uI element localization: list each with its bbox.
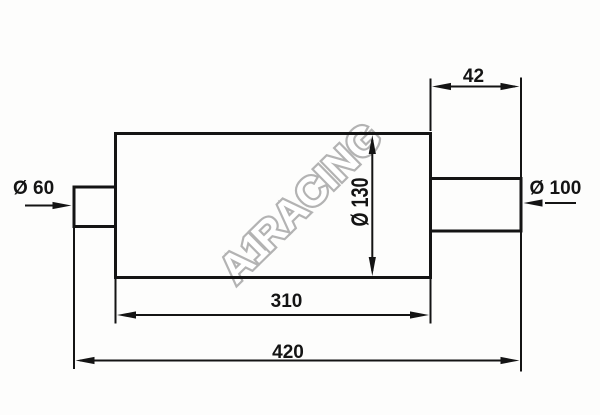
svg-text:310: 310 [271, 291, 303, 312]
svg-text:Ø 130: Ø 130 [348, 177, 374, 226]
svg-text:42: 42 [463, 66, 484, 87]
svg-text:Ø 100: Ø 100 [530, 178, 582, 199]
svg-text:420: 420 [272, 342, 304, 363]
svg-text:Ø 60: Ø 60 [13, 178, 54, 199]
